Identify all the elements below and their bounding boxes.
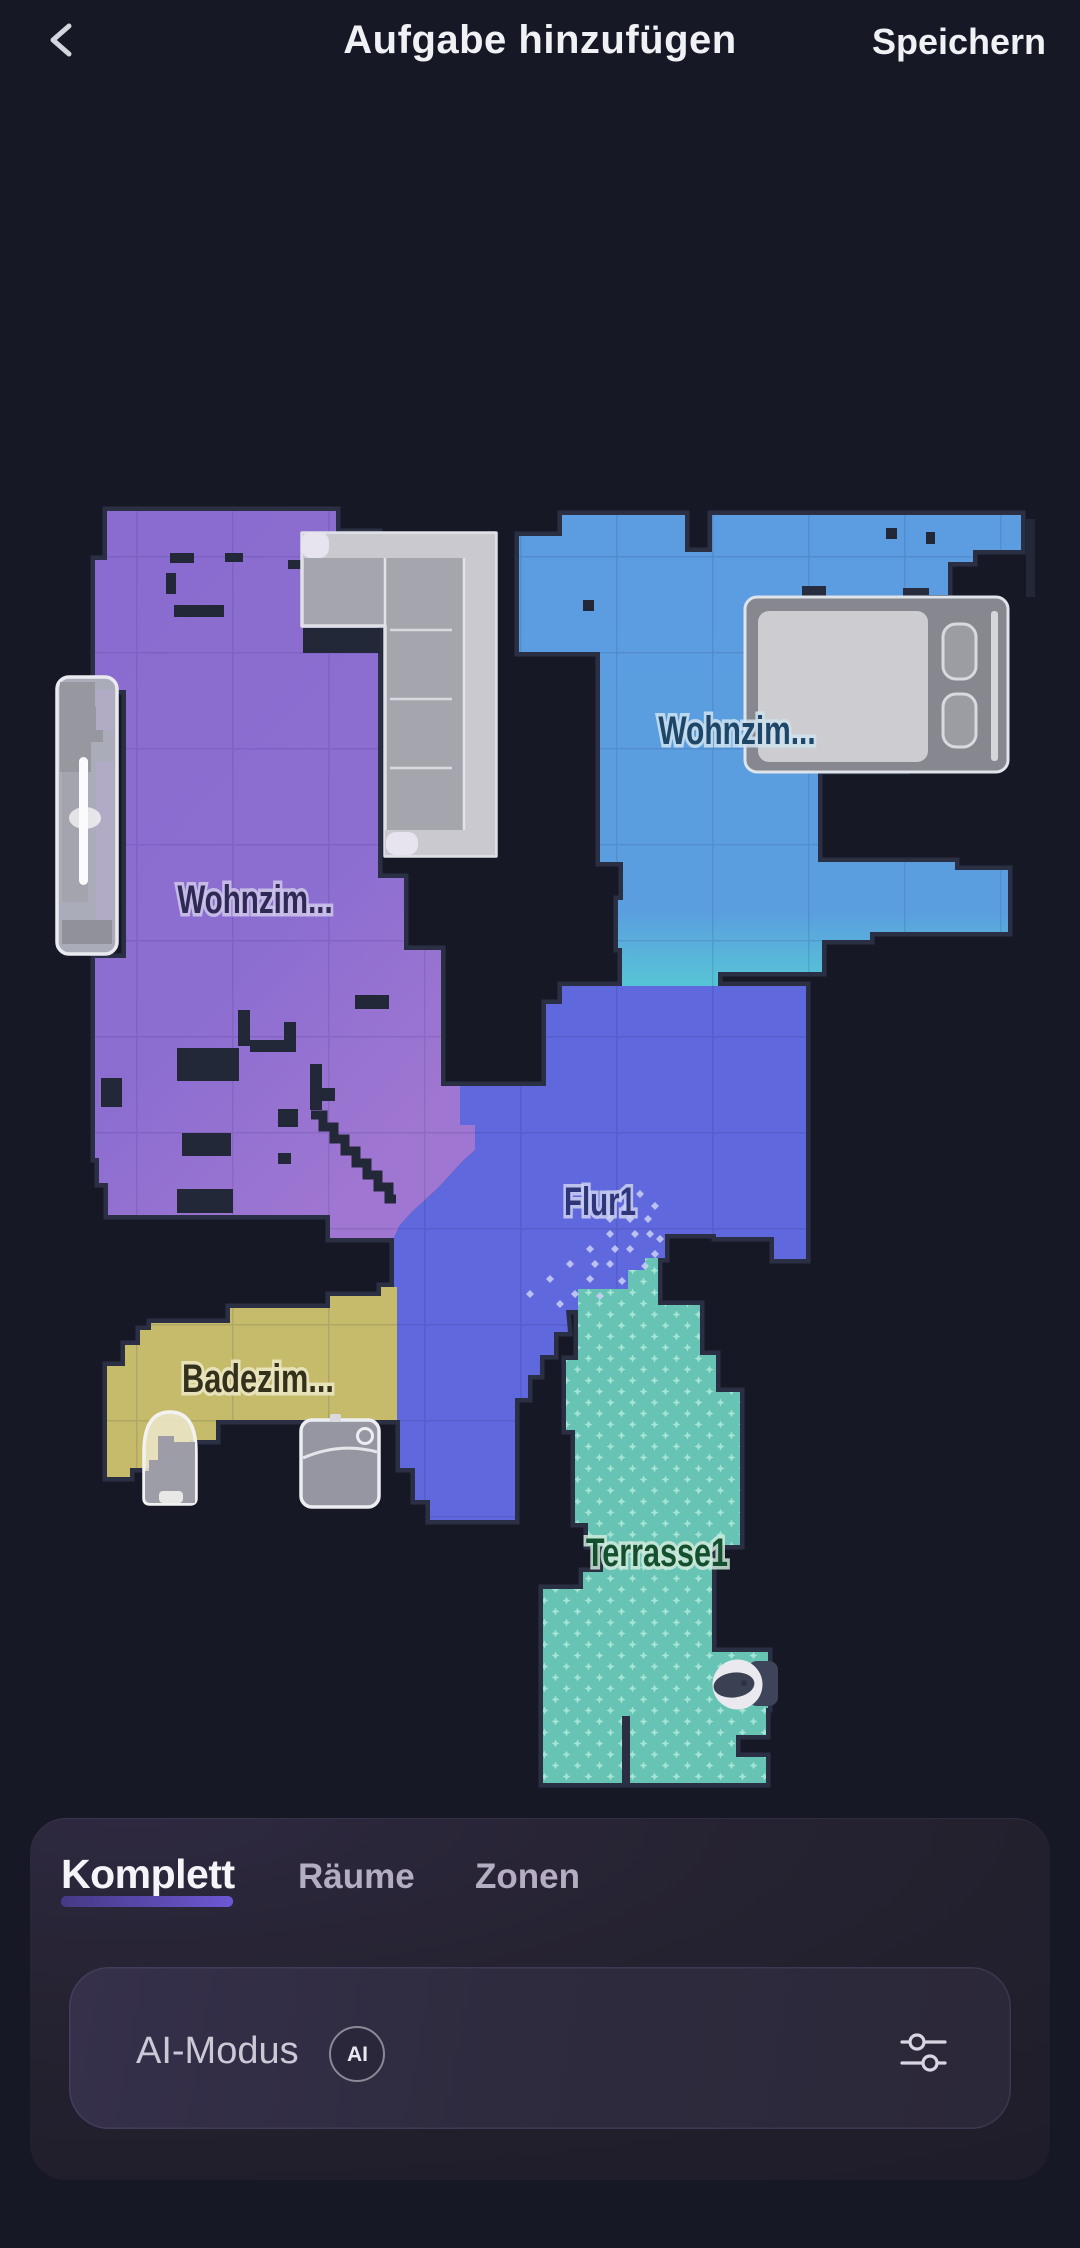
- svg-text:Wohnzim...: Wohnzim...: [658, 709, 815, 753]
- svg-text:Wohnzim...: Wohnzim...: [177, 878, 332, 922]
- svg-text:Badezim...: Badezim...: [182, 1356, 334, 1401]
- svg-text:Flur1: Flur1: [564, 1180, 636, 1224]
- svg-text:Terrasse1: Terrasse1: [586, 1530, 728, 1575]
